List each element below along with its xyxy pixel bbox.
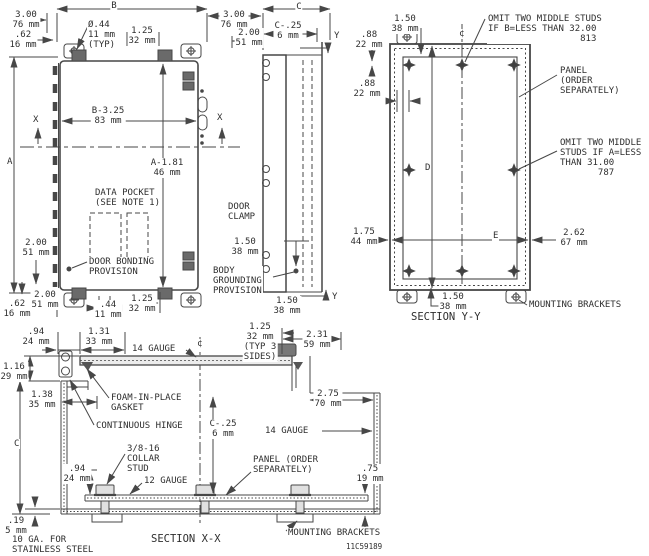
dim-88-yy-1: .88 22 mm <box>354 30 383 50</box>
dim-c25-side: C-.25 6 mm <box>273 21 302 41</box>
dim-200-mid: 2.00 51 mm <box>234 28 263 48</box>
dim-200-left: 2.00 51 mm <box>21 238 50 258</box>
cutline-x-left: X <box>32 115 39 125</box>
note-door-clamp: DOOR CLAMP <box>227 202 256 222</box>
dim-62-top-left: .62 16 mm <box>8 30 37 50</box>
title-section-yy: SECTION Y-Y <box>410 312 482 324</box>
note-panel-xx: PANEL (ORDER SEPARATELY) <box>252 455 319 475</box>
dim-b: B <box>110 1 117 11</box>
note-14-gauge-top: 14 GAUGE <box>131 344 176 354</box>
note-omit-studs-a: OMIT TWO MIDDLE STUDS IF A=LESS THAN 31.… <box>559 138 642 178</box>
cutline-x-right: X <box>216 113 223 123</box>
note-mounting-brackets-xx: MOUNTING BRACKETS <box>287 528 381 538</box>
dim-125-typ3: 1.25 32 mm (TYP 3 SIDES) <box>243 322 278 362</box>
dim-231-xx: 2.31 59 mm <box>302 330 331 350</box>
note-12-gauge: 12 GAUGE <box>143 476 188 486</box>
note-14-gauge-right: 14 GAUGE <box>264 426 309 436</box>
note-omit-studs-b: OMIT TWO MIDDLE STUDS IF B=LESS THAN 32.… <box>487 14 603 44</box>
dim-a181: A-1.81 46 mm <box>150 158 185 178</box>
title-section-xx: SECTION X-X <box>150 534 222 546</box>
dim-125-top: 1.25 32 mm <box>127 26 156 46</box>
dim-88-yy-2: .88 22 mm <box>352 79 381 99</box>
cutline-y-top: Y <box>333 31 340 41</box>
dim-d: D <box>424 163 431 173</box>
dim-175-yy: 1.75 44 mm <box>349 227 378 247</box>
drawing-linework <box>0 0 649 556</box>
centerline-symbol-xx: ¢ <box>196 339 203 349</box>
dim-150-grounding: 1.50 38 mm <box>230 237 259 257</box>
dim-a: A <box>6 157 13 167</box>
note-body-grounding: BODY GROUNDING PROVISION <box>212 266 263 296</box>
note-10-gauge-stainless: 10 GA. FOR STAINLESS STEEL <box>11 535 94 555</box>
dim-131-xx: 1.31 33 mm <box>84 327 113 347</box>
note-panel-yy: PANEL (ORDER SEPARATELY) <box>559 66 621 96</box>
dim-116-xx: 1.16 29 mm <box>0 362 29 382</box>
dim-c25-xx: C-.25 6 mm <box>208 419 237 439</box>
centerline-symbol-yy: ¢ <box>458 29 465 39</box>
dim-c-left: C <box>13 439 20 449</box>
dim-75-xx: .75 19 mm <box>355 464 384 484</box>
dim-150-side-bottom: 1.50 38 mm <box>272 296 301 316</box>
dim-19-xx: .19 5 mm <box>4 516 28 536</box>
note-collar-stud: 3/8-16 COLLAR STUD <box>126 444 161 474</box>
note-mounting-brackets-yy: MOUNTING BRACKETS <box>528 300 622 310</box>
dim-b325: B-3.25 83 mm <box>91 106 126 126</box>
dim-150-yy-bottom: 1.50 38 mm <box>438 292 467 312</box>
dim-44-bottom: .44 11 mm <box>93 300 122 320</box>
dim-300-top-left: 3.00 76 mm <box>11 10 40 30</box>
dim-200-bottom: 2.00 51 mm <box>30 290 59 310</box>
dim-125-bottom: 1.25 32 mm <box>127 294 156 314</box>
dim-138-xx: 1.38 35 mm <box>27 390 56 410</box>
dim-62-bottom: .62 16 mm <box>2 299 31 319</box>
note-data-pocket: DATA POCKET (SEE NOTE 1) <box>94 188 161 208</box>
dim-150-yy-top: 1.50 38 mm <box>390 14 419 34</box>
dim-94-xx-bottom: .94 24 mm <box>62 464 91 484</box>
dim-94-xx-top: .94 24 mm <box>21 327 50 347</box>
cutline-y-bottom: Y <box>331 292 338 302</box>
dim-e: E <box>492 231 499 241</box>
engineering-drawing-sheet: B 3.00 76 mm .62 16 mm Ø.44 11 mm (TYP) … <box>0 0 649 556</box>
dim-275-xx: 2.75 70 mm <box>313 389 342 409</box>
drawing-number: 11C59189 <box>345 543 383 551</box>
note-door-bonding: DOOR BONDING PROVISION <box>88 257 155 277</box>
dim-262-yy: 2.62 67 mm <box>559 228 588 248</box>
note-foam-gasket: FOAM-IN-PLACE GASKET <box>110 393 182 413</box>
dim-c-top: C <box>295 2 302 12</box>
note-hole-dia: Ø.44 11 mm (TYP) <box>87 20 116 50</box>
note-continuous-hinge: CONTINUOUS HINGE <box>95 421 184 431</box>
